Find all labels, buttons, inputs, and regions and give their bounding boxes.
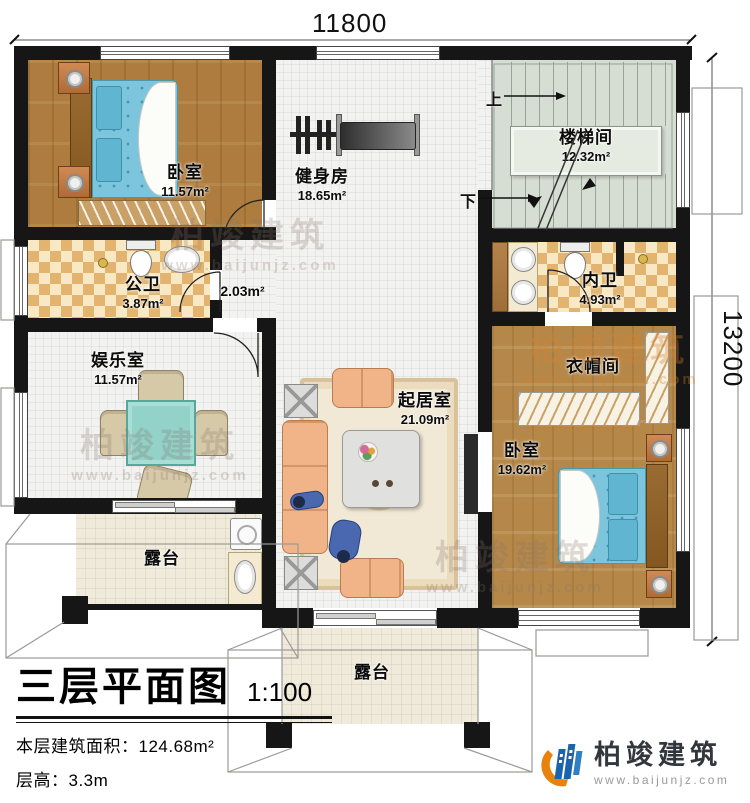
- wall: [262, 322, 276, 514]
- room-name: 卧室: [467, 440, 577, 462]
- bed1-pillow: [96, 86, 122, 130]
- terrace-pillar: [464, 722, 490, 748]
- wall: [210, 240, 222, 270]
- room-area: 18.65m²: [267, 188, 377, 205]
- wall: [437, 608, 518, 628]
- nightstand: [646, 434, 672, 462]
- room-area: 11.57m²: [130, 184, 240, 201]
- nightstand: [58, 62, 90, 94]
- wall: [478, 326, 492, 432]
- game-table: [126, 400, 196, 466]
- bedroom1-wardrobe-rack: [78, 200, 206, 226]
- end-table: [284, 384, 318, 418]
- room-area: 3.87m²: [98, 296, 188, 313]
- cup: [386, 480, 393, 487]
- room-label-bedroom1: 卧室 11.57m²: [130, 162, 240, 201]
- room-area: 11.57m²: [56, 372, 180, 389]
- room-name: 公卫: [98, 274, 188, 296]
- floor-area-note: 本层建筑面积：124.68m²: [16, 732, 346, 757]
- dimension-top: 11800: [312, 8, 387, 39]
- chair: [194, 410, 228, 456]
- gym-bench: [340, 122, 416, 150]
- bath-cabinet: [492, 242, 508, 312]
- stair-treads-upper: [498, 62, 672, 126]
- barbell-bar: [290, 132, 342, 137]
- plan-title: 三层平面图: [16, 654, 231, 712]
- room-label-living-room: 起居室 21.09m²: [370, 390, 480, 429]
- floor-hall: [222, 240, 262, 318]
- window: [14, 392, 28, 498]
- plan-scale: 1:100: [247, 677, 312, 712]
- person-figure: [337, 550, 350, 563]
- nightstand: [646, 570, 672, 598]
- nightstand: [58, 166, 90, 198]
- sink-icon: [511, 247, 536, 272]
- divider: [16, 716, 332, 719]
- room-label-hall: 2.03m²: [200, 282, 285, 300]
- company-logo: 柏竣建筑 www.baijunjz.com: [538, 740, 729, 788]
- flower-vase: [358, 442, 378, 462]
- room-area: 19.62m²: [467, 462, 577, 479]
- stair-up-label: 上: [486, 86, 502, 110]
- room-label-public-bath: 公卫 3.87m²: [98, 274, 188, 313]
- room-label-cloak-room: 衣帽间: [545, 356, 641, 378]
- company-website: www.baijunjz.com: [594, 773, 729, 787]
- sliding-door: [313, 610, 437, 626]
- room-name: 楼梯间: [511, 127, 661, 149]
- sink-icon: [511, 280, 536, 305]
- wall: [210, 300, 222, 318]
- divider: [16, 722, 332, 723]
- bed2-headboard: [646, 464, 668, 568]
- dimension-right: 13200: [717, 310, 748, 387]
- window: [518, 610, 640, 626]
- sliding-door: [112, 500, 236, 513]
- end-table: [284, 556, 318, 590]
- room-name: 露台: [112, 548, 212, 570]
- room-name: 娱乐室: [56, 350, 180, 372]
- window: [14, 246, 28, 316]
- room-label-terrace-left: 露台: [112, 548, 212, 570]
- baijun-building-icon: [538, 740, 586, 788]
- sink-icon: [164, 246, 200, 273]
- room-name: 内卫: [556, 270, 644, 292]
- company-name: 柏竣建筑: [594, 741, 729, 771]
- floor-height-note: 层高：3.3m: [16, 766, 346, 791]
- title-block: 三层平面图 1:100 本层建筑面积：124.68m² 层高：3.3m 注：阳台…: [16, 654, 346, 803]
- sliding-door-leaf: [175, 507, 235, 513]
- bed2-pillow: [608, 473, 638, 515]
- window: [676, 112, 690, 208]
- lamp-icon: [651, 440, 669, 458]
- room-area: 12.32m²: [511, 149, 661, 166]
- stairwell-label-box: 楼梯间 12.32m²: [510, 126, 662, 176]
- person-figure: [293, 496, 305, 508]
- sliding-door-leaf: [115, 502, 175, 508]
- window: [100, 46, 230, 60]
- room-name: 起居室: [370, 390, 480, 412]
- sofa: [282, 420, 328, 554]
- coffee-table: [342, 430, 420, 508]
- stair-down-label: 下: [460, 188, 476, 212]
- terrace-edge: [62, 604, 262, 610]
- bed2-pillow: [608, 519, 638, 561]
- room-area: 4.93m²: [556, 292, 644, 309]
- bed1-pillow: [96, 138, 122, 182]
- lamp-icon: [98, 258, 108, 268]
- room-area: 2.03m²: [200, 282, 285, 300]
- wall: [14, 318, 213, 332]
- armchair: [340, 558, 404, 598]
- cloak-wardrobe-rack: [645, 332, 669, 424]
- lamp-icon: [651, 576, 669, 594]
- terrace-pillar: [62, 596, 88, 624]
- toilet-icon: [126, 240, 156, 250]
- wall: [676, 208, 690, 428]
- sliding-door-leaf: [376, 619, 436, 625]
- wall: [478, 228, 690, 242]
- window: [676, 428, 690, 552]
- lamp-icon: [66, 70, 84, 88]
- room-label-play-room: 娱乐室 11.57m²: [56, 350, 180, 389]
- room-name: 衣帽间: [545, 356, 641, 378]
- floor-plan-canvas: 楼梯间 12.32m² 卧室 11.57m² 健身房 18.65m² 公卫 3.…: [0, 0, 750, 803]
- room-label-private-bath: 内卫 4.93m²: [556, 270, 644, 309]
- sink-icon: [234, 560, 256, 594]
- room-area: 21.09m²: [370, 412, 480, 429]
- wall: [262, 608, 313, 628]
- wall: [640, 608, 690, 628]
- lamp-icon: [638, 254, 648, 264]
- washing-machine: [230, 518, 262, 550]
- room-label-gym: 健身房 18.65m²: [267, 166, 377, 205]
- cloak-wardrobe-rack: [518, 392, 640, 426]
- floor-hall-opening: [262, 240, 276, 318]
- wall: [14, 227, 276, 240]
- room-label-bedroom2: 卧室 19.62m²: [467, 440, 577, 479]
- cup: [372, 480, 379, 487]
- toilet-icon: [560, 242, 590, 252]
- lamp-icon: [66, 174, 84, 192]
- sliding-door-leaf: [316, 613, 376, 619]
- wall: [676, 46, 690, 112]
- window: [316, 46, 440, 60]
- room-name: 卧室: [130, 162, 240, 184]
- stair-treads-lower: [498, 174, 672, 228]
- room-name: 健身房: [267, 166, 377, 188]
- wall: [478, 312, 545, 326]
